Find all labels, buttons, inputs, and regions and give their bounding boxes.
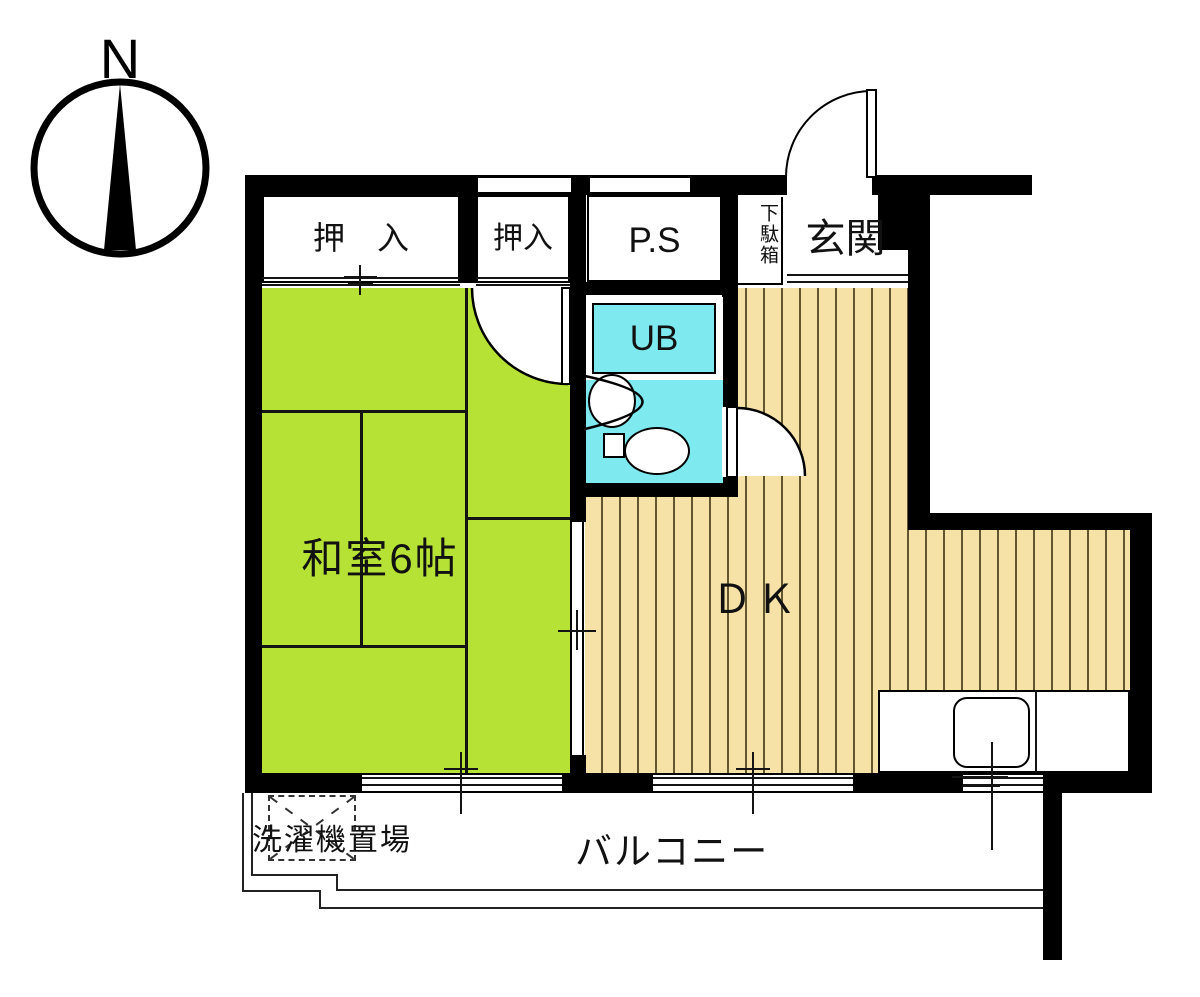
closet-wide-label: 押 入 (262, 222, 460, 254)
toilet-door-icon (727, 407, 805, 477)
balcony-label: バルコニー (575, 833, 769, 870)
shoe-cabinet-label: 下駄箱 (747, 203, 777, 283)
floor-plan: N 押 入 押入 P.S (0, 0, 1200, 997)
unit-bath-label: UB (592, 321, 716, 356)
japanese-room-door-icon (472, 288, 570, 384)
japanese-room-label: 和室6帖 (262, 538, 498, 580)
closet-small-label: 押入 (476, 224, 570, 254)
compass-north-label: N (100, 27, 140, 90)
basin-counter-curve (585, 376, 643, 429)
dk-label: ＤＫ (712, 580, 800, 620)
compass-icon: N (34, 27, 206, 254)
washing-machine-label: 洗濯機置場 (252, 826, 412, 856)
entrance-label: 玄関 (783, 219, 908, 259)
entrance-door-icon (786, 90, 876, 177)
pipe-space-label: P.S (587, 223, 722, 258)
